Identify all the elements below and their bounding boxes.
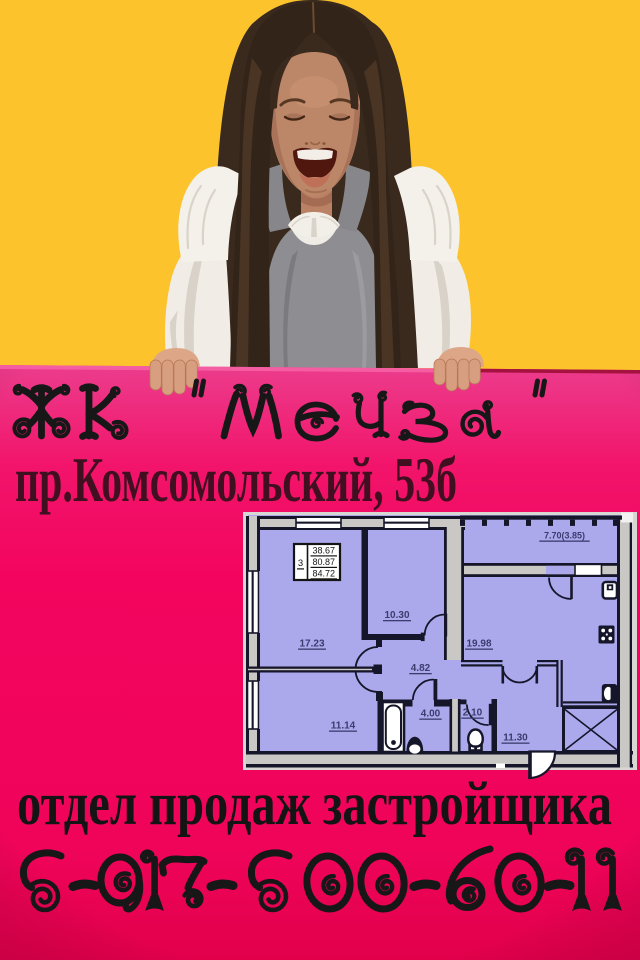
svg-text:2.10: 2.10 xyxy=(463,708,483,719)
svg-text:7.70(3.85): 7.70(3.85) xyxy=(544,531,585,541)
svg-text:17.23: 17.23 xyxy=(299,639,324,650)
svg-text:80.87: 80.87 xyxy=(313,557,336,567)
svg-text:отдел продаж застройщика: отдел продаж застройщика xyxy=(17,771,612,838)
svg-text:19.98: 19.98 xyxy=(466,639,491,650)
svg-text:11.14: 11.14 xyxy=(331,721,356,732)
svg-text:11.30: 11.30 xyxy=(503,733,528,744)
svg-text:пр.Комсомольский, 53б: пр.Комсомольский, 53б xyxy=(15,445,457,515)
svg-text:84.72: 84.72 xyxy=(313,569,336,579)
svg-text:4.82: 4.82 xyxy=(411,663,431,674)
svg-text:3: 3 xyxy=(298,558,303,569)
svg-text:10.30: 10.30 xyxy=(384,610,409,621)
svg-text:4.00: 4.00 xyxy=(421,709,441,720)
svg-text:38.67: 38.67 xyxy=(313,546,336,556)
